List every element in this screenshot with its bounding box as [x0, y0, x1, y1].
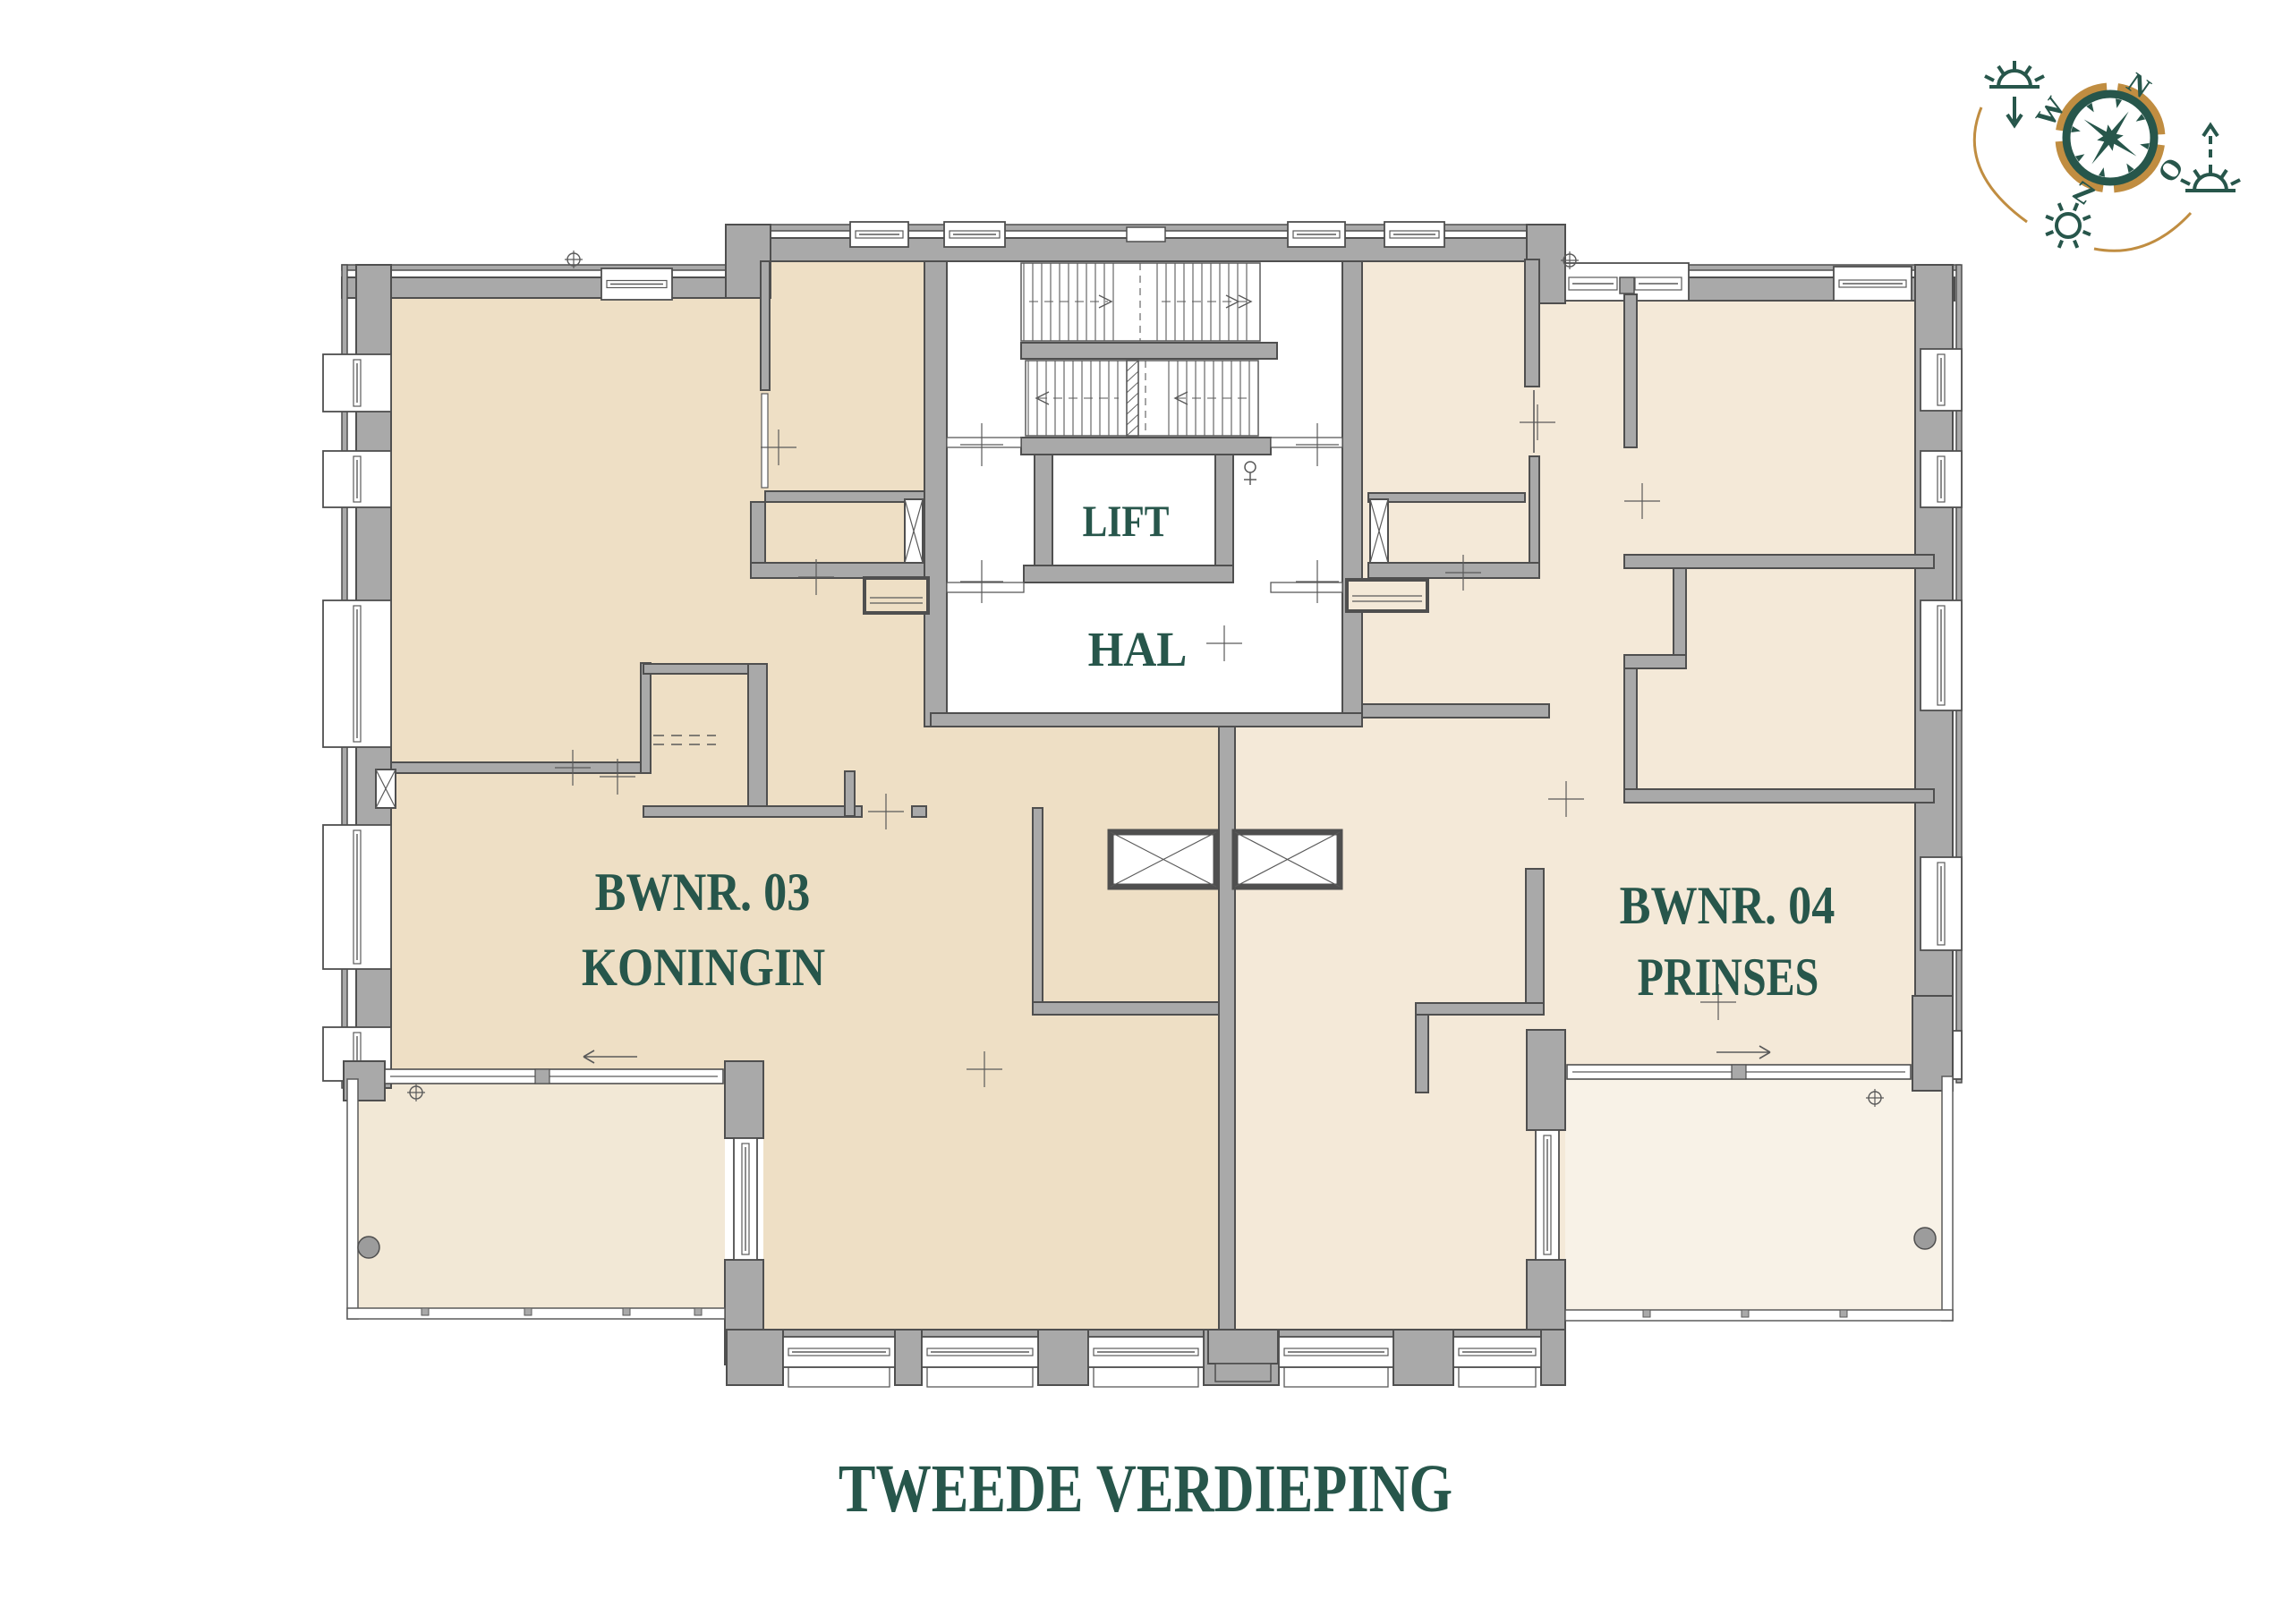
svg-text:TWEEDE VERDIEPING: TWEEDE VERDIEPING — [839, 1451, 1452, 1526]
svg-text:BWNR. 03: BWNR. 03 — [595, 863, 811, 923]
svg-text:PRINSES: PRINSES — [1638, 948, 1819, 1007]
svg-text:BWNR. 04: BWNR. 04 — [1620, 877, 1835, 936]
svg-text:HAL: HAL — [1088, 623, 1188, 676]
svg-text:LIFT: LIFT — [1083, 496, 1170, 545]
svg-text:KONINGIN: KONINGIN — [582, 938, 825, 997]
